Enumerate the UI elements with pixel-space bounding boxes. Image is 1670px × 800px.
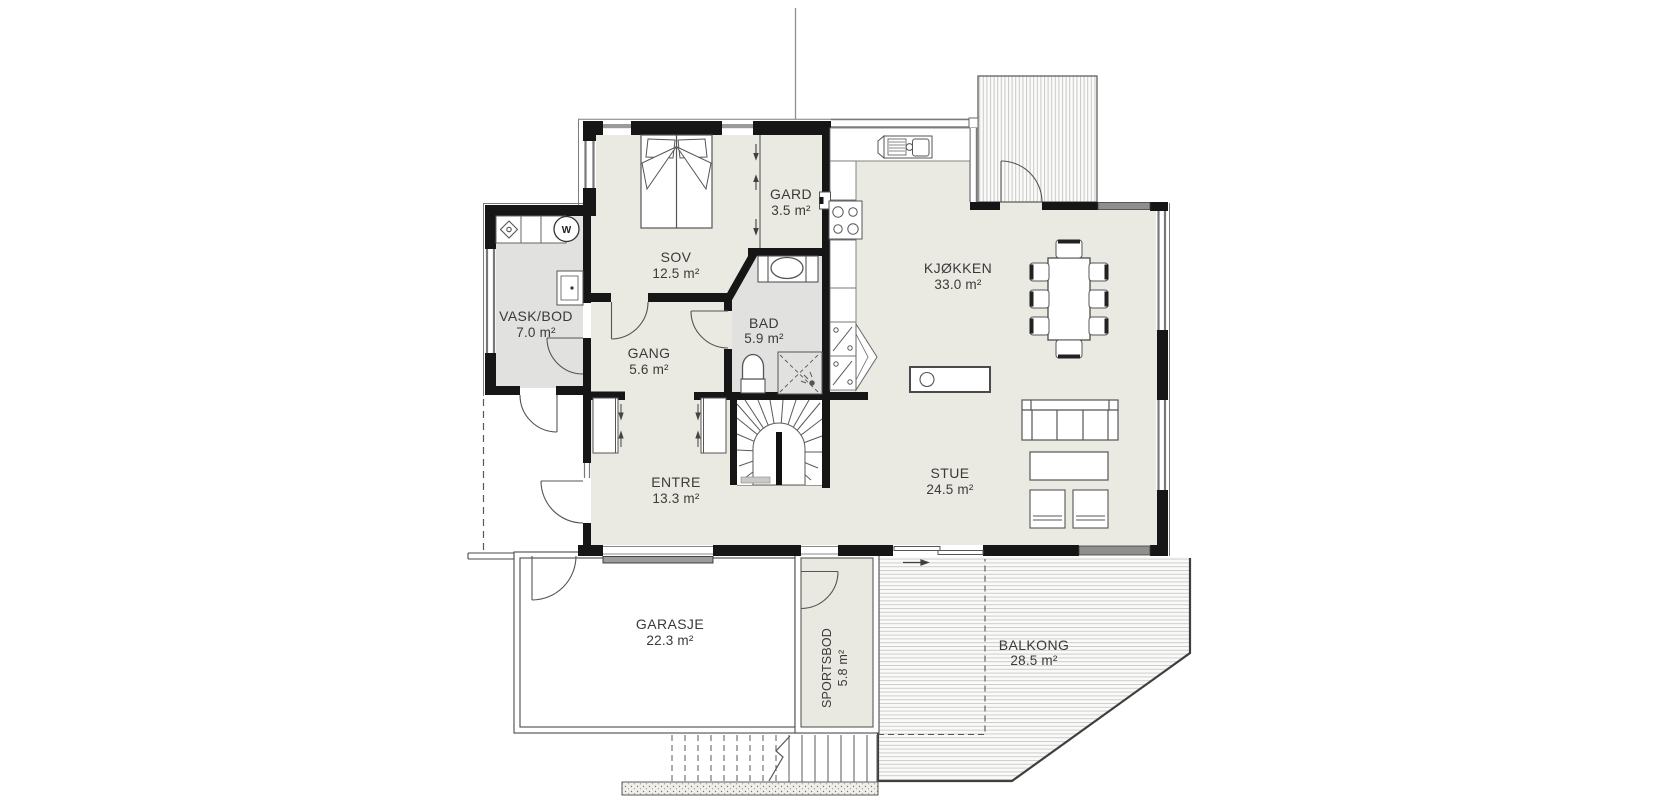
svg-text:SOV: SOV [661,249,692,265]
svg-text:3.5 m²: 3.5 m² [771,203,811,218]
svg-text:5.8 m²: 5.8 m² [836,650,850,687]
svg-text:GANG: GANG [628,345,671,361]
svg-text:24.5 m²: 24.5 m² [926,482,973,497]
svg-text:VASK/BOD: VASK/BOD [499,308,573,324]
svg-text:BALKONG: BALKONG [999,637,1070,653]
svg-text:13.3 m²: 13.3 m² [652,491,699,506]
svg-text:33.0 m²: 33.0 m² [934,277,981,292]
svg-text:BAD: BAD [749,315,779,331]
svg-text:5.6 m²: 5.6 m² [629,362,669,377]
svg-text:GARD: GARD [770,186,812,202]
svg-text:7.0 m²: 7.0 m² [516,325,556,340]
svg-text:GARASJE: GARASJE [636,616,704,632]
svg-text:ENTRE: ENTRE [651,474,700,490]
svg-text:STUE: STUE [931,465,970,481]
svg-text:22.3 m²: 22.3 m² [646,633,693,648]
svg-text:28.5 m²: 28.5 m² [1010,653,1057,668]
svg-text:SPORTSBOD: SPORTSBOD [820,628,834,708]
svg-text:W: W [562,225,572,236]
svg-text:5.9 m²: 5.9 m² [744,331,784,346]
svg-text:12.5 m²: 12.5 m² [652,266,699,281]
svg-text:KJØKKEN: KJØKKEN [924,260,992,276]
